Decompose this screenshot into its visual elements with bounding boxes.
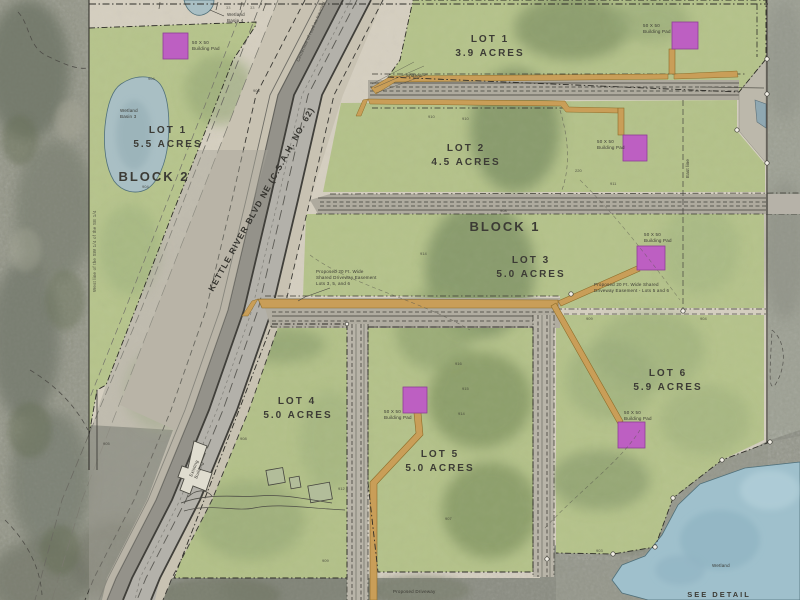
svg-text:5.0 ACRES: 5.0 ACRES — [263, 410, 332, 421]
svg-text:50 X 50: 50 X 50 — [643, 23, 660, 28]
svg-text:LOT 1: LOT 1 — [149, 125, 187, 136]
svg-text:220: 220 — [575, 168, 582, 173]
svg-text:Wetland: Wetland — [120, 108, 138, 113]
svg-text:Building Pad: Building Pad — [384, 415, 412, 420]
svg-text:SEE DETAIL: SEE DETAIL — [687, 590, 751, 599]
svg-text:West line of the SW 1/4 of the: West line of the SW 1/4 of the SE 1/4 — [92, 210, 97, 292]
svg-text:Shared Driveway Easement: Shared Driveway Easement — [316, 275, 377, 280]
svg-text:912: 912 — [338, 486, 345, 491]
svg-text:905: 905 — [103, 441, 110, 446]
svg-text:910: 910 — [462, 116, 469, 121]
svg-text:908: 908 — [240, 436, 247, 441]
svg-text:LOT 6: LOT 6 — [649, 368, 687, 379]
svg-text:5.0 ACRES: 5.0 ACRES — [405, 463, 474, 474]
svg-text:Proposed 20 Ft. Wide Shared: Proposed 20 Ft. Wide Shared — [594, 282, 659, 287]
svg-text:Building Pad: Building Pad — [597, 145, 625, 150]
svg-text:4.5 ACRES: 4.5 ACRES — [431, 157, 500, 168]
svg-text:LOT 1: LOT 1 — [471, 34, 509, 45]
svg-text:5.0 ACRES: 5.0 ACRES — [496, 269, 565, 280]
svg-text:50 X 50: 50 X 50 — [624, 410, 641, 415]
svg-text:Building Pad: Building Pad — [192, 46, 220, 51]
svg-text:33: 33 — [226, 5, 231, 10]
svg-text:LOT 4: LOT 4 — [278, 396, 316, 407]
svg-text:904: 904 — [288, 146, 295, 151]
svg-text:50 X 50: 50 X 50 — [597, 139, 614, 144]
svg-text:33: 33 — [250, 5, 255, 10]
svg-text:904: 904 — [700, 316, 707, 321]
svg-text:Wetland: Wetland — [712, 563, 730, 568]
svg-text:BLOCK 2: BLOCK 2 — [118, 169, 189, 184]
svg-text:Basin 4: Basin 4 — [227, 18, 244, 23]
svg-text:LOT 5: LOT 5 — [421, 449, 459, 460]
svg-text:904: 904 — [142, 184, 149, 189]
svg-text:914: 914 — [420, 251, 427, 256]
svg-text:BLOCK 1: BLOCK 1 — [469, 219, 540, 234]
svg-text:LOT 3: LOT 3 — [512, 255, 550, 266]
svg-text:Building Pad: Building Pad — [643, 29, 671, 34]
svg-text:Proposed Driveway: Proposed Driveway — [393, 589, 436, 594]
svg-text:Shared: Shared — [406, 73, 422, 78]
svg-text:Lots 3, 5, and 6: Lots 3, 5, and 6 — [316, 281, 351, 286]
svg-text:916: 916 — [455, 361, 462, 366]
svg-text:East line: East line — [685, 159, 690, 178]
svg-text:Building Pad: Building Pad — [624, 416, 652, 421]
svg-text:911: 911 — [610, 181, 617, 186]
svg-text:5.5 ACRES: 5.5 ACRES — [133, 139, 202, 150]
svg-text:915: 915 — [462, 386, 469, 391]
svg-text:Driveway Easement - Lots 5 and: Driveway Easement - Lots 5 and 6 — [594, 288, 669, 293]
svg-text:906: 906 — [253, 88, 260, 93]
svg-text:Building Pad: Building Pad — [644, 238, 672, 243]
svg-text:50 X 50: 50 X 50 — [644, 232, 661, 237]
svg-text:907: 907 — [445, 516, 452, 521]
svg-text:Basin 3: Basin 3 — [120, 114, 137, 119]
svg-text:908: 908 — [500, 208, 507, 213]
svg-text:909: 909 — [322, 558, 329, 563]
svg-text:3.9 ACRES: 3.9 ACRES — [455, 48, 524, 59]
svg-text:Proposed 20 Ft. Wide: Proposed 20 Ft. Wide — [316, 269, 364, 274]
svg-text:5.9 ACRES: 5.9 ACRES — [633, 382, 702, 393]
svg-text:50 X 50: 50 X 50 — [384, 409, 401, 414]
svg-text:50 X 50: 50 X 50 — [192, 40, 209, 45]
svg-text:909: 909 — [586, 316, 593, 321]
svg-text:LOT 2: LOT 2 — [447, 143, 485, 154]
svg-text:903: 903 — [596, 548, 603, 553]
svg-text:910: 910 — [428, 114, 435, 119]
svg-text:914: 914 — [458, 411, 465, 416]
svg-text:904: 904 — [148, 76, 155, 81]
svg-text:Wetland: Wetland — [227, 12, 245, 17]
